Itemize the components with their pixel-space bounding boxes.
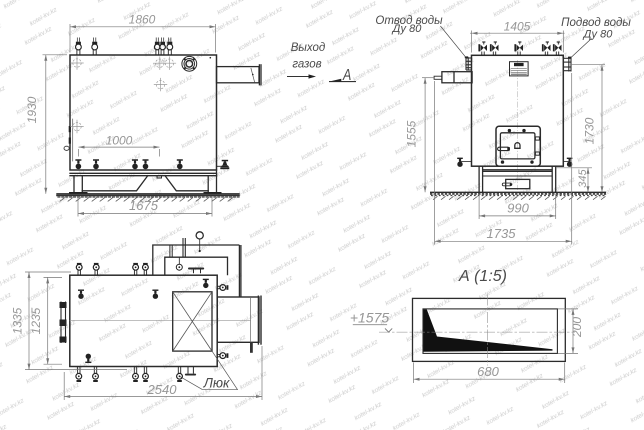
svg-text:1675: 1675 [129, 198, 159, 213]
svg-text:Люк: Люк [203, 375, 230, 390]
svg-text:Ду 80: Ду 80 [391, 23, 423, 35]
svg-text:990: 990 [507, 201, 529, 216]
svg-text:1735: 1735 [487, 226, 517, 241]
svg-text:1930: 1930 [25, 96, 39, 123]
svg-text:1730: 1730 [583, 117, 597, 144]
svg-text:1555: 1555 [405, 120, 419, 147]
svg-text:+1575: +1575 [350, 310, 390, 326]
svg-text:1235: 1235 [29, 307, 43, 334]
svg-text:680: 680 [477, 364, 499, 379]
svg-text:Ду 80: Ду 80 [582, 28, 614, 40]
svg-text:Подвод воды: Подвод воды [561, 17, 631, 29]
svg-text:Выход: Выход [291, 42, 326, 54]
svg-text:А (1:5): А (1:5) [458, 268, 507, 285]
svg-text:газов: газов [292, 59, 321, 71]
svg-text:2540: 2540 [147, 382, 178, 397]
svg-text:А: А [342, 67, 351, 85]
svg-text:1335: 1335 [11, 307, 25, 334]
svg-text:345: 345 [577, 168, 589, 187]
svg-text:1405: 1405 [504, 20, 531, 34]
svg-text:1000: 1000 [106, 134, 133, 148]
svg-text:1860: 1860 [129, 13, 156, 27]
svg-text:200: 200 [570, 317, 584, 338]
